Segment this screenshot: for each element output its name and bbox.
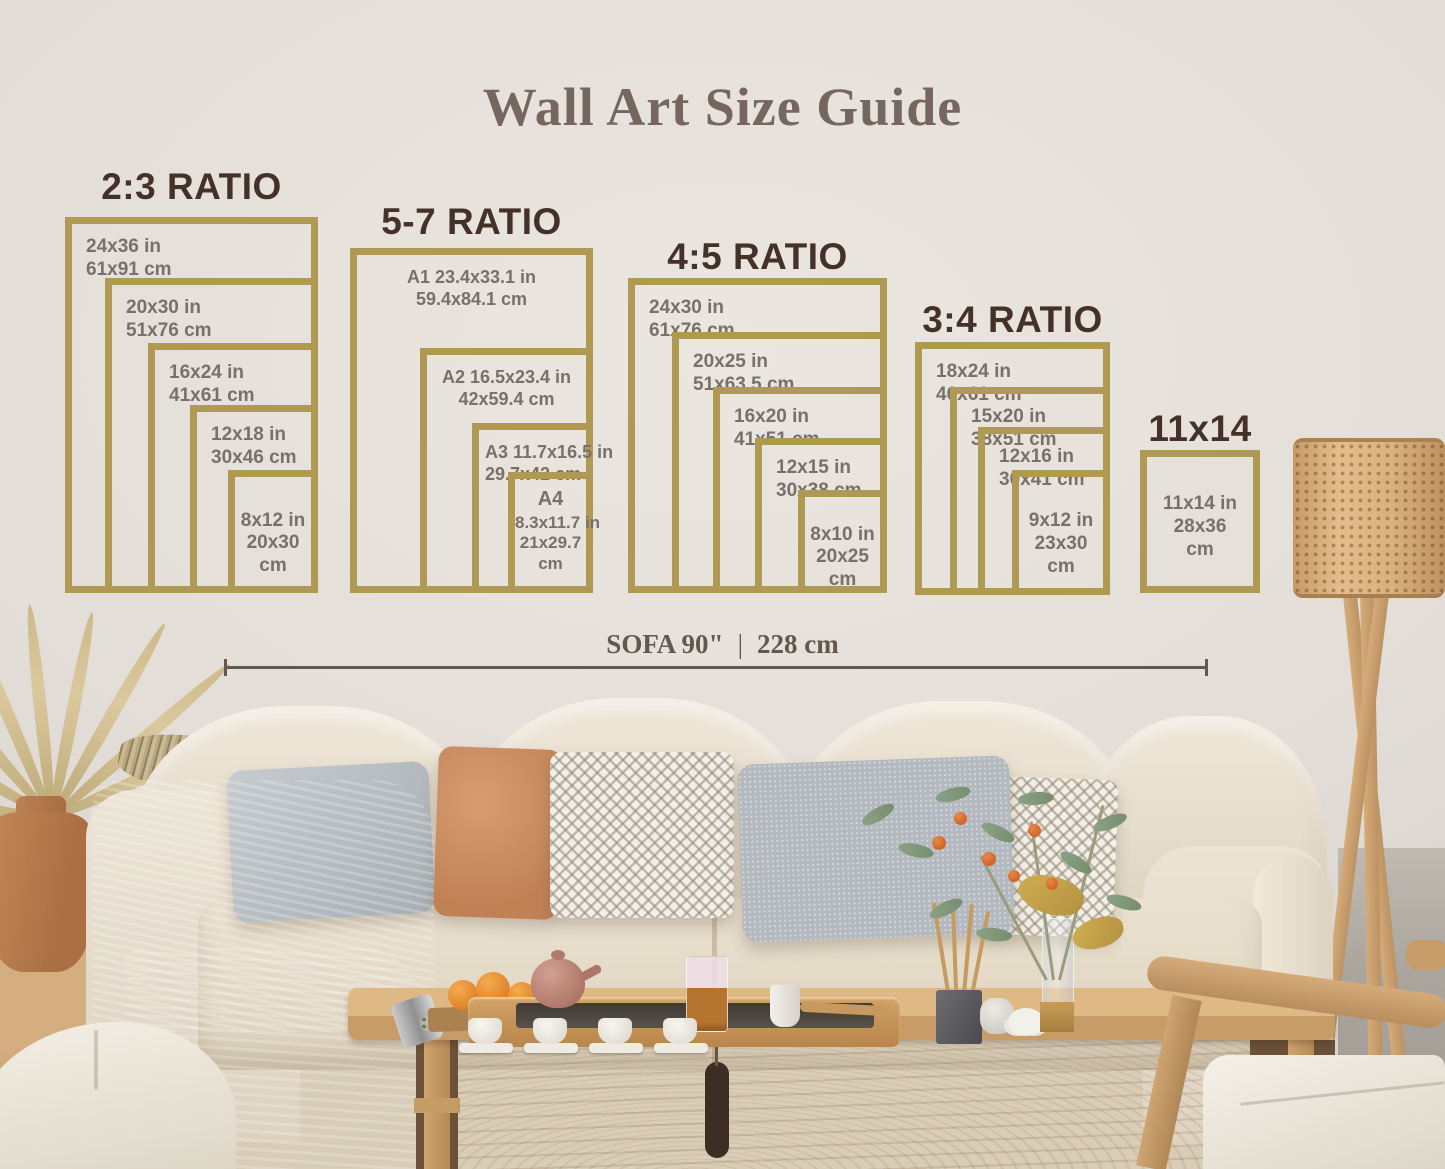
living-room-size-guide: Wall Art Size Guide 2:3 RATIO 5-7 RATIO …	[0, 0, 1445, 1169]
sofa-measure-imperial: SOFA 90"	[606, 629, 723, 659]
ratio-heading-5-7: 5-7 RATIO	[350, 201, 593, 243]
size-label: 24x36 in61x91 cm	[86, 236, 172, 282]
teacup	[468, 1018, 502, 1044]
measure-tick-left	[224, 659, 227, 676]
ratio-heading-11x14: 11x14	[1140, 408, 1260, 450]
sofa-measure-divider: |	[724, 629, 757, 659]
size-label: 12x18 in30x46 cm	[211, 424, 297, 470]
size-frame-8x10: 8x10 in20x25cm	[798, 490, 887, 593]
saucer	[589, 1043, 643, 1053]
sofa-measure-metric: 228 cm	[757, 629, 839, 659]
rattan-lamp-shade	[1293, 438, 1445, 598]
table-keyhole-handle	[705, 1062, 729, 1158]
teacup	[663, 1018, 697, 1044]
size-label: A48.3x11.7 in21x29.7cm	[515, 487, 586, 574]
size-label: 9x12 in23x30cm	[1019, 510, 1103, 578]
teapot-lid	[551, 950, 565, 960]
size-label: 11x14 in28x36cm	[1147, 493, 1253, 561]
size-label: A2 16.5x23.4 in42x59.4 cm	[433, 367, 580, 410]
size-label: 20x30 in51x76 cm	[126, 297, 212, 343]
size-label: 8x12 in20x30cm	[235, 510, 311, 578]
ratio-heading-2-3: 2:3 RATIO	[65, 166, 318, 208]
size-frame-9x12: 9x12 in23x30cm	[1012, 470, 1110, 595]
saucer	[654, 1043, 708, 1053]
size-frame-8x12: 8x12 in20x30cm	[228, 470, 318, 593]
coffee-table-front	[458, 1040, 1250, 1169]
page-title: Wall Art Size Guide	[0, 76, 1445, 138]
eucalyptus-branch	[820, 760, 1160, 1020]
pouf-seam	[94, 1030, 98, 1090]
sofa-measure-label: SOFA 90"|228 cm	[0, 629, 1445, 660]
armchair-back	[1406, 940, 1445, 970]
clay-teapot	[531, 958, 585, 1008]
size-frame-11x14: 11x14 in28x36cm	[1140, 450, 1260, 593]
measure-tick-right	[1205, 659, 1208, 676]
armchair-cushion	[1203, 1055, 1445, 1169]
pillow-terracotta	[433, 746, 563, 920]
table-shelf	[414, 1098, 460, 1113]
terracotta-vase	[0, 812, 90, 972]
size-frame-a4: A48.3x11.7 in21x29.7cm	[508, 472, 593, 593]
teacup	[598, 1018, 632, 1044]
saucer	[524, 1043, 578, 1053]
size-label: 8x10 in20x25cm	[805, 524, 880, 592]
ratio-heading-3-4: 3:4 RATIO	[915, 299, 1110, 341]
white-cup	[770, 985, 800, 1027]
ratio-heading-4-5: 4:5 RATIO	[628, 236, 887, 278]
pillow-chevron	[550, 752, 734, 918]
size-label: 16x24 in41x61 cm	[169, 362, 255, 408]
size-label: A1 23.4x33.1 in59.4x84.1 cm	[363, 267, 580, 310]
teacup	[533, 1018, 567, 1044]
sofa-measure-line	[225, 666, 1207, 669]
saucer	[459, 1043, 513, 1053]
